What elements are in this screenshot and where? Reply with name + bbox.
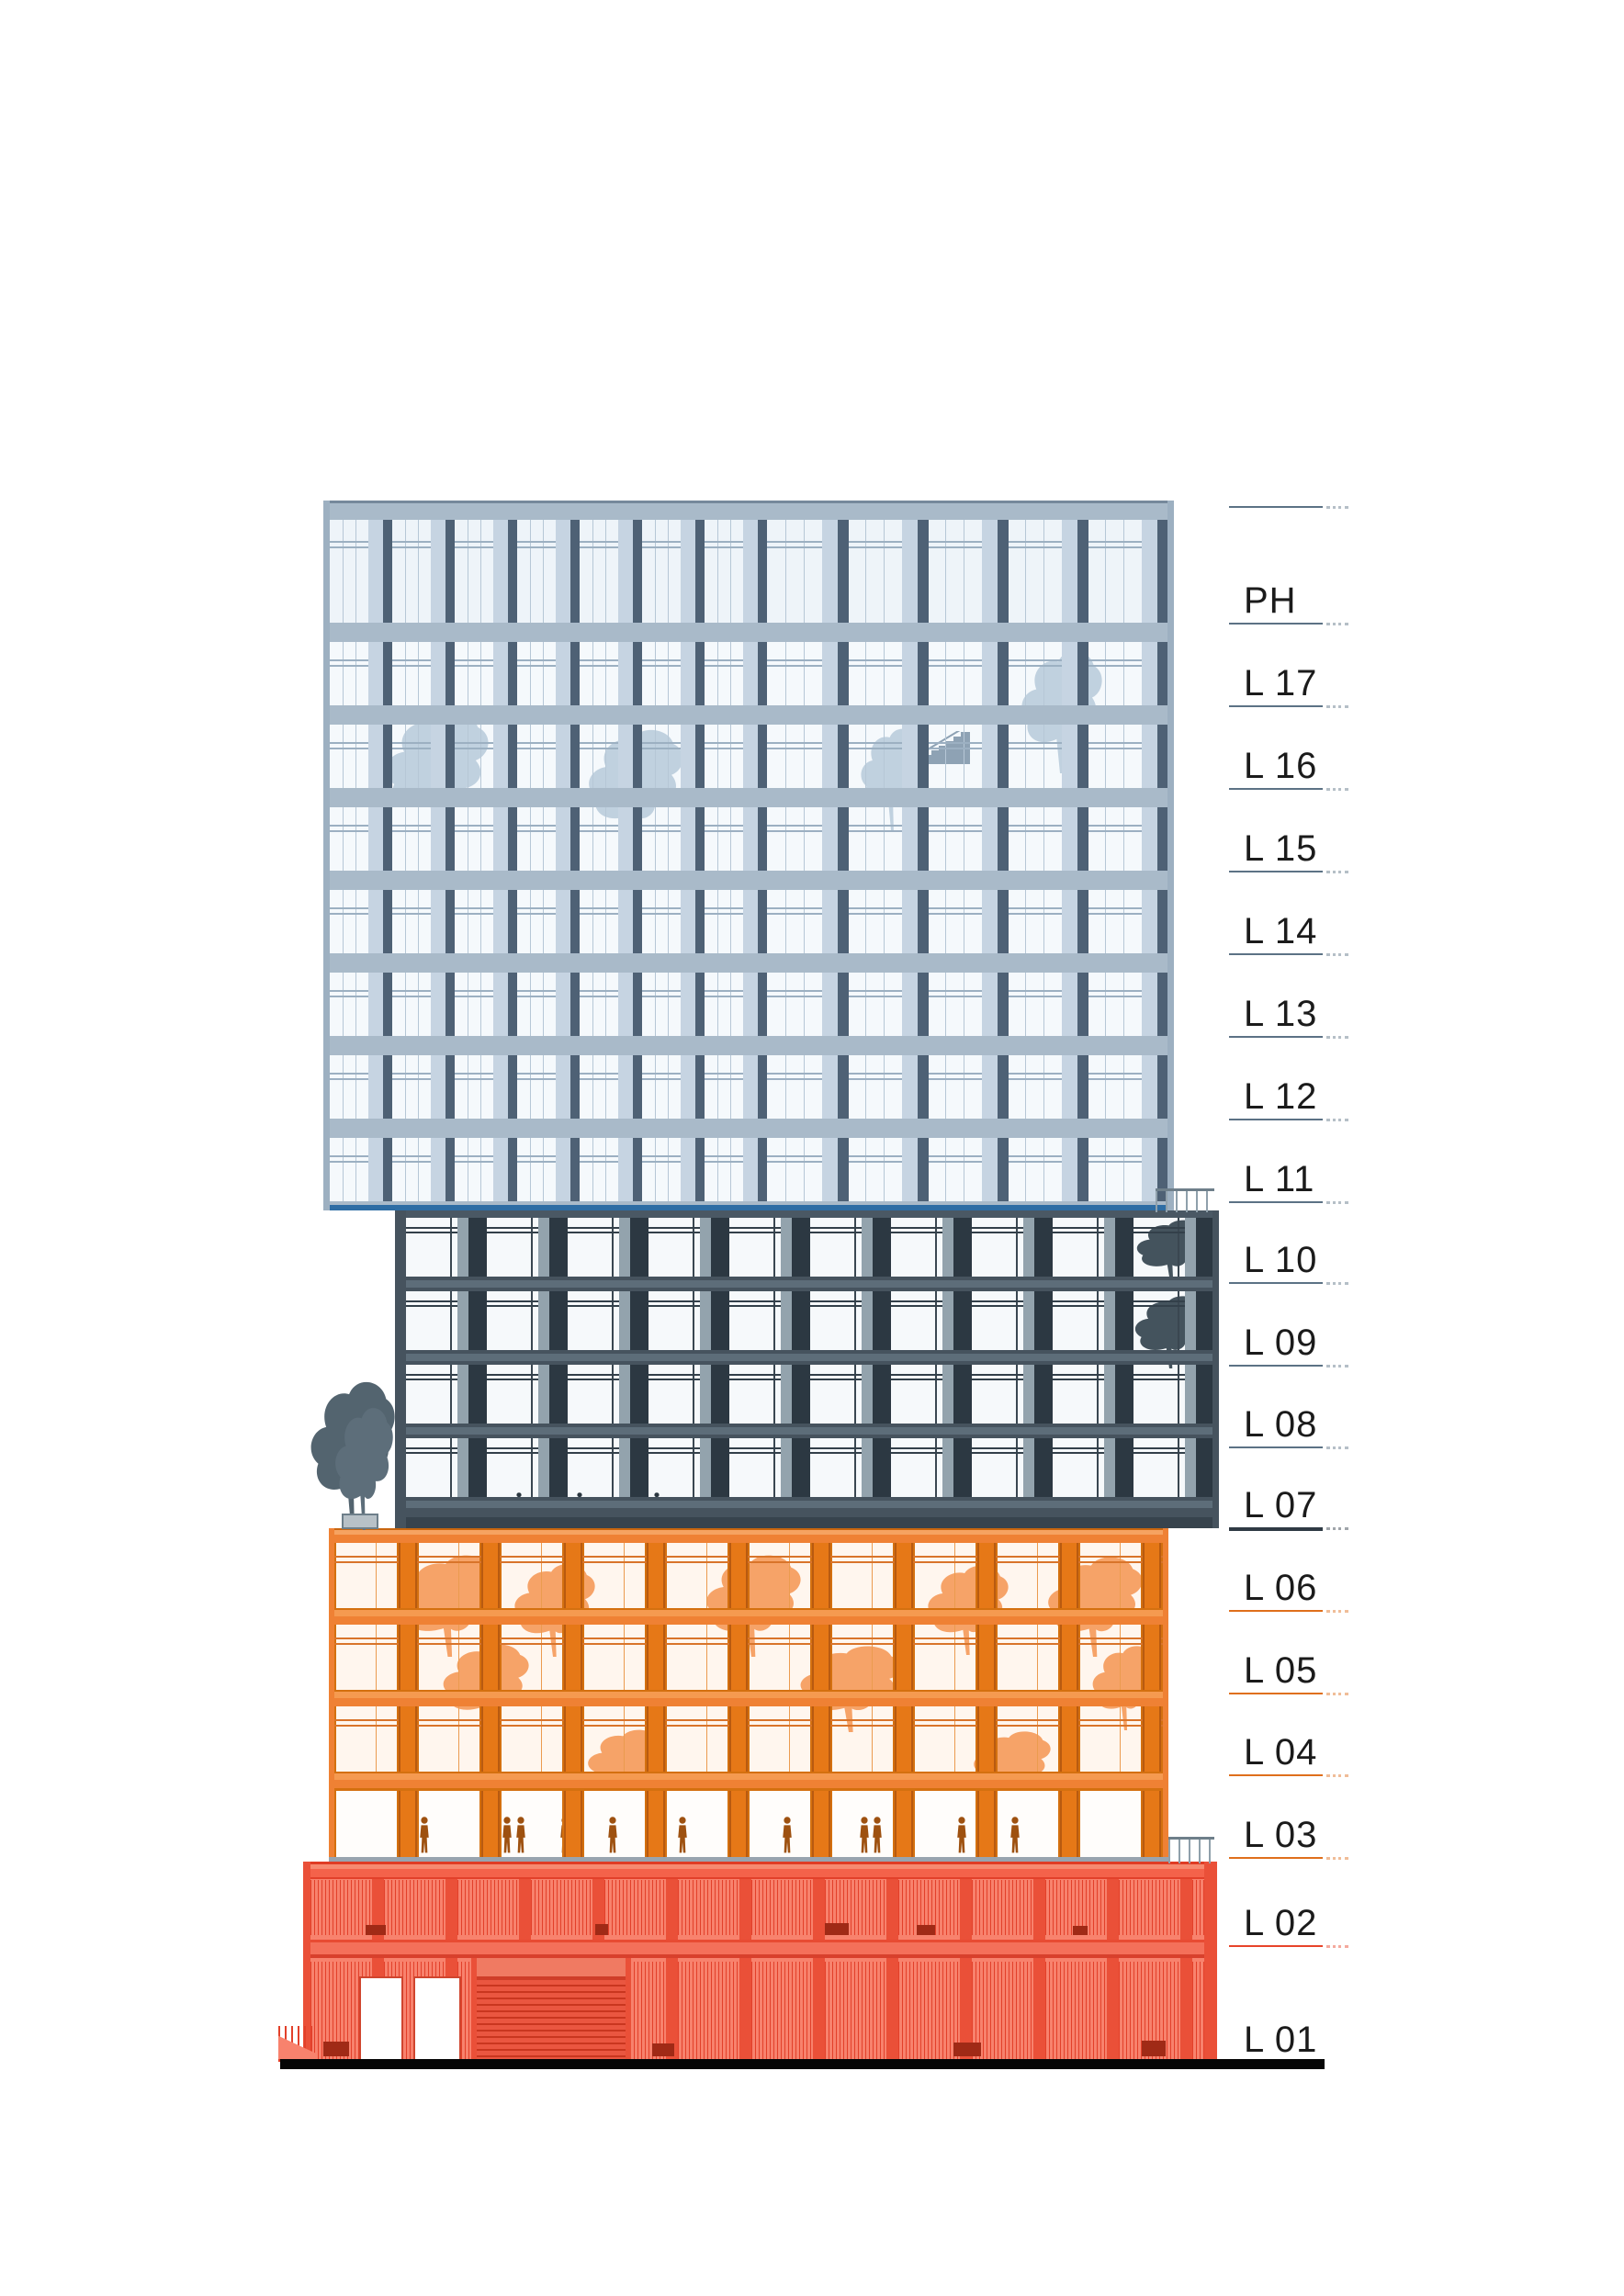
floor-line-tail-l13 — [1326, 1036, 1348, 1039]
person-silhouette — [922, 692, 929, 709]
base-floor-band — [310, 1940, 1204, 1958]
floor-label-l11: L 11 — [1244, 1158, 1382, 1200]
floor-label-l09: L 09 — [1244, 1322, 1382, 1364]
lower-typical-stories — [334, 1543, 1163, 1788]
person-silhouette — [727, 1817, 740, 1853]
tree-silhouette — [858, 722, 924, 830]
facade-grid-left — [330, 623, 769, 1201]
floor-line-tail-l07 — [1326, 1527, 1348, 1530]
floor-label-l01: L 01 — [1244, 2019, 1382, 2061]
tree-silhouette — [1089, 1640, 1159, 1730]
floor-line-tail-l04 — [1326, 1774, 1348, 1777]
floor-line-l11 — [1229, 1201, 1323, 1203]
floor-label-l15: L 15 — [1244, 827, 1382, 870]
person-silhouette — [781, 1817, 794, 1853]
floor-line-tail-l15 — [1326, 871, 1348, 873]
floor-line-l08 — [1229, 1446, 1323, 1448]
floor-line-l02 — [1229, 1945, 1323, 1947]
tree-silhouette — [395, 1548, 501, 1657]
blue-accent-stripe — [330, 1201, 1167, 1210]
floor-line-tail-l08 — [1326, 1446, 1348, 1449]
ground-line — [280, 2059, 1325, 2069]
upper-typical-stories — [330, 623, 1167, 1201]
roller-door-header — [477, 1958, 626, 1980]
tree-silhouette — [924, 1559, 1009, 1655]
middle-block-stories — [406, 1218, 1212, 1512]
floor-line-tail-l11 — [1326, 1201, 1348, 1204]
person-silhouette — [514, 1817, 527, 1853]
floor-label-l02: L 02 — [1244, 1902, 1382, 1944]
bike-rack-silhouette — [953, 2043, 981, 2056]
floor-line-tail-l12 — [1326, 1119, 1348, 1121]
tree-silhouette — [511, 1558, 595, 1657]
tree-planter — [342, 1514, 378, 1529]
floor-line-l17 — [1229, 705, 1323, 707]
floor-line-l09 — [1229, 1365, 1323, 1367]
floor-line-l12 — [1229, 1119, 1323, 1120]
floor-line-l06 — [1229, 1610, 1323, 1612]
tree-silhouette — [380, 703, 489, 839]
floor-line-ph — [1229, 623, 1323, 625]
floor-label-l17: L 17 — [1244, 662, 1382, 704]
lower-block-facade — [329, 1528, 1168, 1857]
base-block-parapet — [310, 1862, 1204, 1877]
floor-line-tail-l02 — [1326, 1945, 1348, 1948]
floor-line-l03 — [1229, 1857, 1323, 1859]
base-level2-louvers — [310, 1877, 1204, 1940]
middle-block-soffit — [406, 1512, 1212, 1528]
person-silhouette — [676, 1817, 689, 1853]
floor-line-tail-roof — [1326, 506, 1348, 509]
tree-silhouette — [1018, 643, 1102, 773]
floor-label-l16: L 16 — [1244, 745, 1382, 787]
floor-line-l14 — [1229, 953, 1323, 955]
person-silhouette — [418, 1817, 431, 1853]
bike-rack-silhouette — [323, 2042, 349, 2056]
person-silhouette — [643, 1817, 656, 1853]
floor-line-l10 — [1229, 1282, 1323, 1284]
floor-label-l06: L 06 — [1244, 1567, 1382, 1609]
middle-block-parapet — [406, 1210, 1212, 1218]
floor-label-l03: L 03 — [1244, 1814, 1382, 1856]
floor-line-tail-l14 — [1326, 953, 1348, 956]
interior-silhouette — [1073, 1926, 1088, 1935]
amenity-story — [334, 1788, 1163, 1857]
floor-line-tail-l05 — [1326, 1693, 1348, 1695]
floor-label-l05: L 05 — [1244, 1649, 1382, 1692]
basement-ramp — [278, 2026, 317, 2062]
base-level1 — [310, 1958, 1204, 2059]
person-silhouette — [871, 1817, 884, 1853]
stair-silhouette — [917, 731, 970, 764]
middle-block-facade — [395, 1210, 1219, 1528]
orange-base-divider — [329, 1857, 1168, 1862]
person-silhouette — [893, 1817, 906, 1853]
floor-line-l15 — [1229, 871, 1323, 872]
floor-line-tail-l17 — [1326, 705, 1348, 708]
tree-silhouette — [702, 1548, 801, 1657]
interior-silhouette — [825, 1923, 849, 1935]
tree-silhouette — [1132, 1291, 1207, 1368]
facade-grid-right — [769, 501, 1167, 623]
floor-label-l10: L 10 — [1244, 1239, 1382, 1281]
floor-line-tail-l03 — [1326, 1857, 1348, 1860]
interior-silhouette — [366, 1925, 386, 1935]
bike-rack-silhouette — [1142, 2041, 1166, 2056]
entrance-opening — [415, 1978, 459, 2059]
floor-line-roof — [1229, 506, 1323, 508]
building-elevation-canvas: PHL 17L 16L 15L 14L 13L 12L 11L 10L 09L … — [0, 0, 1624, 2296]
bike-rack-silhouette — [652, 2043, 674, 2056]
floor-label-l08: L 08 — [1244, 1403, 1382, 1446]
floor-label-l04: L 04 — [1244, 1731, 1382, 1773]
floor-label-l07: L 07 — [1244, 1484, 1382, 1526]
floor-label-l13: L 13 — [1244, 993, 1382, 1035]
facade-grid-left — [330, 501, 769, 623]
person-silhouette — [858, 1817, 871, 1853]
terrace-railing — [1168, 1837, 1214, 1863]
person-silhouette — [606, 1817, 619, 1853]
person-silhouette — [571, 1817, 584, 1853]
person-silhouette — [501, 1817, 513, 1853]
person-silhouette — [955, 1817, 968, 1853]
floor-line-tail-ph — [1326, 623, 1348, 625]
base-block-facade — [303, 1862, 1217, 2059]
floor-line-l04 — [1229, 1774, 1323, 1776]
floor-line-tail-l09 — [1326, 1365, 1348, 1367]
floor-line-l07 — [1229, 1527, 1323, 1531]
person-silhouette — [1009, 1817, 1021, 1853]
tree-silhouette — [1043, 1550, 1143, 1657]
floor-line-l16 — [1229, 788, 1323, 790]
floor-label-l14: L 14 — [1244, 910, 1382, 952]
floor-line-tail-l16 — [1326, 788, 1348, 791]
terrace-railing — [1156, 1188, 1214, 1212]
tree-silhouette — [1133, 1216, 1207, 1282]
tree-silhouette — [795, 1640, 902, 1732]
floor-label-l12: L 12 — [1244, 1075, 1382, 1118]
floor-line-l05 — [1229, 1693, 1323, 1694]
person-silhouette — [558, 1817, 571, 1853]
roller-shutter-door — [471, 1958, 631, 2059]
interior-silhouette — [595, 1924, 608, 1935]
roller-door-slats — [477, 1980, 626, 2059]
upper-block-facade — [323, 501, 1174, 1210]
floor-line-l13 — [1229, 1036, 1323, 1038]
floor-label-ph: PH — [1244, 580, 1382, 622]
tree-silhouette — [439, 1638, 529, 1732]
floor-line-tail-l06 — [1326, 1610, 1348, 1613]
penthouse-story — [330, 501, 1167, 623]
tree-silhouette — [584, 722, 683, 849]
floor-line-tail-l10 — [1326, 1282, 1348, 1285]
interior-silhouette — [917, 1925, 935, 1935]
tree-silhouette — [333, 1400, 393, 1530]
lower-block-parapet — [334, 1528, 1163, 1543]
entrance-opening — [361, 1978, 401, 2059]
facade-grid-right — [769, 623, 1167, 1201]
